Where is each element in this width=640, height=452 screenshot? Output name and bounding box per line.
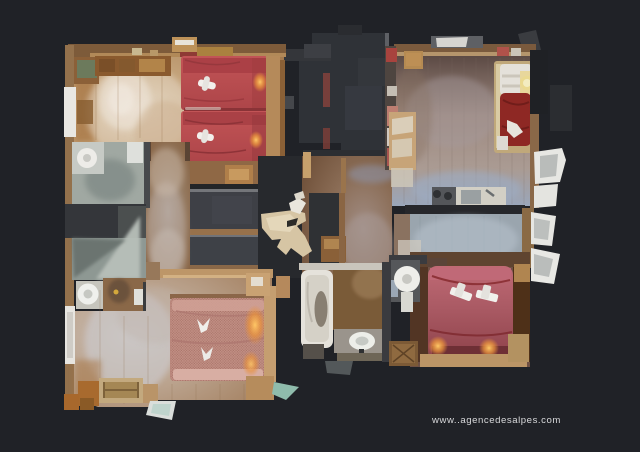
svg-text:www..agencedesalpes.com: www..agencedesalpes.com <box>431 415 561 426</box>
